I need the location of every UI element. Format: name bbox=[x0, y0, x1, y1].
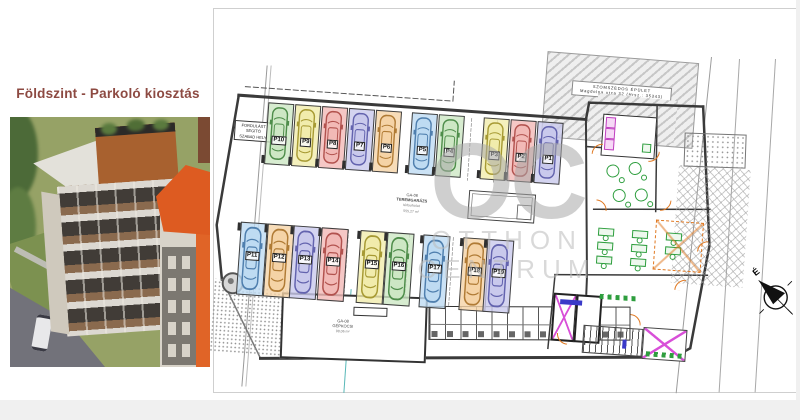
chair-symbol bbox=[601, 263, 607, 269]
parking-stall-p13: P13 bbox=[289, 225, 321, 300]
chair-symbol bbox=[602, 249, 608, 255]
skylight-opening bbox=[653, 220, 704, 273]
chair-symbol bbox=[635, 251, 641, 257]
stall-label: P11 bbox=[245, 251, 260, 261]
chair-symbol bbox=[636, 237, 642, 243]
column-stub bbox=[460, 238, 464, 246]
sanitary-fixture bbox=[604, 139, 615, 151]
column-stub bbox=[384, 233, 388, 241]
column-stub bbox=[420, 235, 424, 243]
table-symbol bbox=[628, 162, 642, 176]
community-table-area bbox=[599, 158, 661, 220]
car-room-name: GÉPKOCSI bbox=[332, 323, 353, 329]
car-lift-platform bbox=[353, 307, 387, 317]
column-stub bbox=[357, 231, 361, 239]
column-stub bbox=[288, 157, 292, 165]
north-compass-icon bbox=[751, 271, 797, 317]
table-symbol bbox=[634, 188, 648, 202]
column-stub bbox=[484, 240, 488, 248]
page-title: Földszint - Parkoló kiosztás bbox=[4, 86, 212, 101]
stall-label: P1 bbox=[542, 155, 554, 165]
stairs bbox=[582, 325, 644, 357]
column-stub bbox=[315, 159, 319, 167]
car-lift-room-label: GA-08 GÉPKOCSI 98,06 m² bbox=[311, 317, 376, 335]
column-stub bbox=[261, 155, 265, 163]
column-stub bbox=[405, 165, 409, 173]
column-stub bbox=[530, 174, 534, 182]
chair-symbol bbox=[647, 201, 653, 207]
parking-stall-p17: P17 bbox=[418, 234, 450, 309]
chair-symbol bbox=[625, 201, 631, 207]
chair-symbol bbox=[641, 174, 647, 180]
column-stub bbox=[342, 161, 346, 169]
floor-plan-sheet[interactable]: SZOMSZÉDOS ÉPÜLET Magdolna utca 32 (Hrsz… bbox=[213, 8, 799, 393]
chair-symbol bbox=[634, 265, 640, 271]
car-room-area: 98,06 m² bbox=[336, 330, 350, 334]
stall-label: P3 bbox=[488, 151, 500, 161]
tree-center bbox=[228, 278, 234, 284]
garage-room-label: GA-06 TEREMGARÁZS térburkolat 555,27 m² bbox=[379, 190, 444, 216]
garage-plan: FORDULÁST SEGÍTŐ SZABAD HELY GA-06 TEREM… bbox=[201, 63, 781, 413]
marker-blue bbox=[622, 340, 627, 349]
parking-stall-p4: P4 bbox=[435, 114, 465, 178]
column-stub bbox=[432, 167, 436, 175]
garage-sub2: 555,27 m² bbox=[403, 209, 419, 214]
stall-label: P9 bbox=[300, 138, 312, 148]
stall-label: P13 bbox=[297, 255, 312, 265]
stall-label: P2 bbox=[515, 153, 527, 163]
stall-label: P10 bbox=[271, 136, 286, 146]
parking-stall-p1: P1 bbox=[533, 121, 563, 185]
turning-label-line3: SZABAD HELY bbox=[239, 133, 267, 140]
sanitary-fixture bbox=[605, 117, 616, 129]
stall-label: P17 bbox=[427, 264, 442, 274]
column-stub bbox=[369, 162, 373, 170]
parking-stall-p19: P19 bbox=[482, 239, 514, 314]
stall-label: P16 bbox=[391, 262, 406, 272]
stall-label: P6 bbox=[380, 144, 392, 154]
stall-label: P4 bbox=[443, 148, 455, 158]
stall-label: P5 bbox=[416, 146, 428, 156]
column-stub bbox=[264, 224, 268, 232]
chair-symbol bbox=[603, 235, 609, 241]
render-neighbor-windows bbox=[162, 247, 196, 365]
bottom-margin-band bbox=[0, 400, 800, 420]
column-stub bbox=[318, 228, 322, 236]
stall-label: P7 bbox=[354, 142, 366, 152]
courtyard-planter bbox=[684, 132, 747, 168]
stall-label: P14 bbox=[325, 257, 340, 267]
building-render-image[interactable] bbox=[10, 117, 210, 367]
table-symbol bbox=[606, 164, 620, 178]
stall-label: P8 bbox=[327, 140, 339, 150]
parking-stall-p6: P6 bbox=[372, 110, 402, 174]
column-stub bbox=[504, 172, 508, 180]
chair-symbol bbox=[619, 177, 625, 183]
sanitary-fixture bbox=[605, 128, 616, 140]
column-stub bbox=[290, 226, 294, 234]
render-corner-sliver bbox=[198, 117, 210, 163]
parking-stall-p14: P14 bbox=[317, 227, 349, 302]
stall-label: P15 bbox=[364, 260, 379, 270]
column-stub bbox=[477, 170, 481, 178]
parking-stall-p16: P16 bbox=[383, 232, 415, 307]
garage-sub1: térburkolat bbox=[403, 203, 420, 208]
right-margin-band bbox=[796, 0, 800, 420]
bike-racks bbox=[646, 351, 682, 358]
column-stub bbox=[237, 222, 241, 230]
table-symbol bbox=[612, 189, 626, 203]
stall-label: P18 bbox=[467, 267, 482, 277]
stall-label: P19 bbox=[491, 269, 506, 279]
bike-storage-room bbox=[641, 327, 687, 362]
stall-label: P12 bbox=[271, 253, 286, 263]
